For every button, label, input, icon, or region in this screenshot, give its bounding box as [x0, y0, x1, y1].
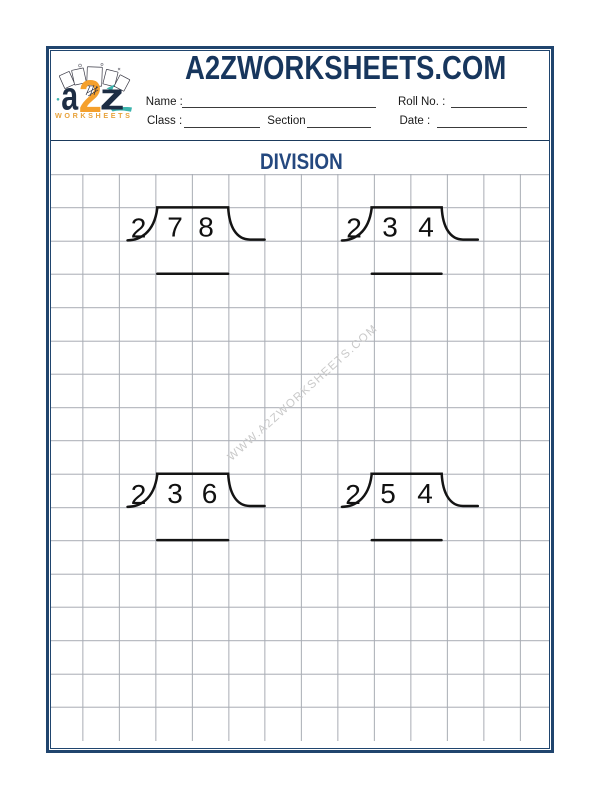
svg-text:6: 6 — [202, 478, 218, 509]
svg-text:4: 4 — [417, 478, 433, 509]
svg-text:2: 2 — [131, 479, 147, 510]
svg-text:2: 2 — [131, 213, 147, 244]
svg-text:5: 5 — [380, 478, 396, 509]
svg-text:7: 7 — [167, 212, 183, 243]
svg-text:8: 8 — [198, 212, 214, 243]
svg-text:3: 3 — [167, 478, 183, 509]
svg-text:2: 2 — [345, 479, 361, 510]
svg-text:4: 4 — [418, 212, 434, 243]
svg-text:2: 2 — [346, 213, 362, 244]
svg-text:3: 3 — [382, 212, 398, 243]
